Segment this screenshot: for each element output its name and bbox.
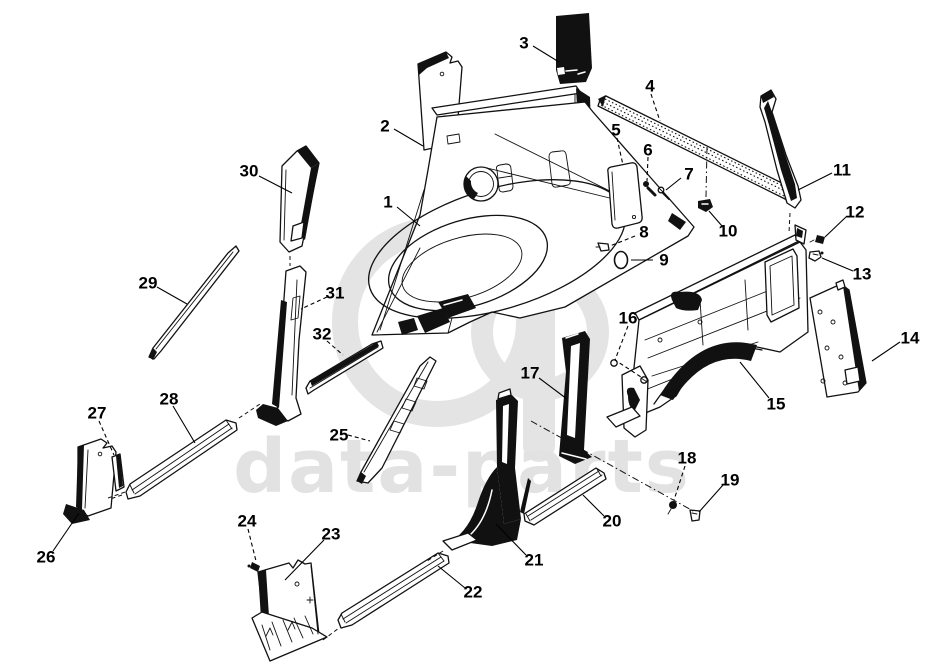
callout-label-16: 16 bbox=[619, 309, 638, 328]
callout-label-22: 22 bbox=[464, 583, 483, 602]
part-9-grommet bbox=[615, 252, 628, 269]
callout-label-23: 23 bbox=[322, 525, 341, 544]
exploded-parts-diagram: data-parts bbox=[0, 0, 928, 670]
callout-leader-22 bbox=[438, 566, 465, 588]
part-19-clip bbox=[690, 510, 700, 521]
callout-label-2: 2 bbox=[380, 117, 389, 136]
callout-label-21: 21 bbox=[525, 551, 544, 570]
callout-leader-12 bbox=[825, 216, 847, 237]
callout-label-5: 5 bbox=[611, 121, 620, 140]
part-11-d-pillar-garnish bbox=[760, 90, 801, 233]
callout-leader-2 bbox=[394, 129, 423, 146]
part-26-kick-panel-front bbox=[63, 439, 116, 524]
callout-label-11: 11 bbox=[833, 161, 851, 180]
callout-label-24: 24 bbox=[238, 512, 257, 531]
callout-label-17: 17 bbox=[521, 364, 540, 383]
callout-leader-28 bbox=[173, 406, 195, 443]
callout-leader-31 bbox=[301, 297, 327, 309]
callout-leader-19 bbox=[699, 485, 723, 512]
callout-label-15: 15 bbox=[767, 395, 786, 414]
parts-diagram-page: data-parts bbox=[0, 0, 928, 670]
callout-label-12: 12 bbox=[846, 203, 865, 222]
callout-label-20: 20 bbox=[603, 512, 622, 531]
callout-leader-14 bbox=[872, 342, 900, 361]
part-22-sill-scuff-rail bbox=[338, 553, 449, 628]
callout-label-8: 8 bbox=[639, 223, 648, 242]
callout-label-1: 1 bbox=[383, 193, 392, 212]
callout-label-27: 27 bbox=[88, 404, 107, 423]
part-29-pillar-blade bbox=[149, 246, 239, 360]
callout-label-25: 25 bbox=[330, 426, 349, 445]
callout-label-9: 9 bbox=[659, 251, 668, 270]
callout-label-18: 18 bbox=[678, 449, 697, 468]
callout-leader-13 bbox=[822, 258, 853, 271]
callout-label-26: 26 bbox=[37, 548, 56, 567]
callout-label-30: 30 bbox=[240, 162, 259, 181]
callout-label-3: 3 bbox=[519, 34, 528, 53]
part-24-pin bbox=[248, 562, 261, 572]
part-12-clip bbox=[810, 235, 825, 244]
callout-leader-24 bbox=[248, 529, 256, 561]
callout-label-19: 19 bbox=[721, 471, 740, 490]
callout-leader-26 bbox=[53, 513, 79, 551]
callout-leader-29 bbox=[157, 287, 187, 304]
watermark-text: data-parts bbox=[233, 424, 691, 510]
callout-label-14: 14 bbox=[901, 329, 920, 348]
part-14-rear-pillar-trim bbox=[810, 280, 866, 397]
callout-label-32: 32 bbox=[313, 325, 332, 344]
part-30-pillar-upper-trim bbox=[280, 146, 319, 266]
part-31-pillar-lower-trim bbox=[256, 266, 306, 426]
callout-leader-7 bbox=[666, 178, 681, 190]
part-13-clip bbox=[809, 251, 824, 261]
callout-label-6: 6 bbox=[643, 141, 652, 160]
callout-label-10: 10 bbox=[719, 222, 738, 241]
callout-label-13: 13 bbox=[853, 265, 872, 284]
callout-leader-11 bbox=[798, 173, 832, 190]
callout-leader-4 bbox=[651, 94, 660, 121]
callout-label-4: 4 bbox=[645, 77, 655, 96]
callout-leader-15 bbox=[740, 362, 769, 398]
callout-leader-3 bbox=[533, 46, 559, 62]
callout-label-29: 29 bbox=[139, 274, 158, 293]
callout-label-7: 7 bbox=[684, 165, 693, 184]
callout-label-28: 28 bbox=[160, 390, 179, 409]
callout-label-31: 31 bbox=[326, 284, 345, 303]
